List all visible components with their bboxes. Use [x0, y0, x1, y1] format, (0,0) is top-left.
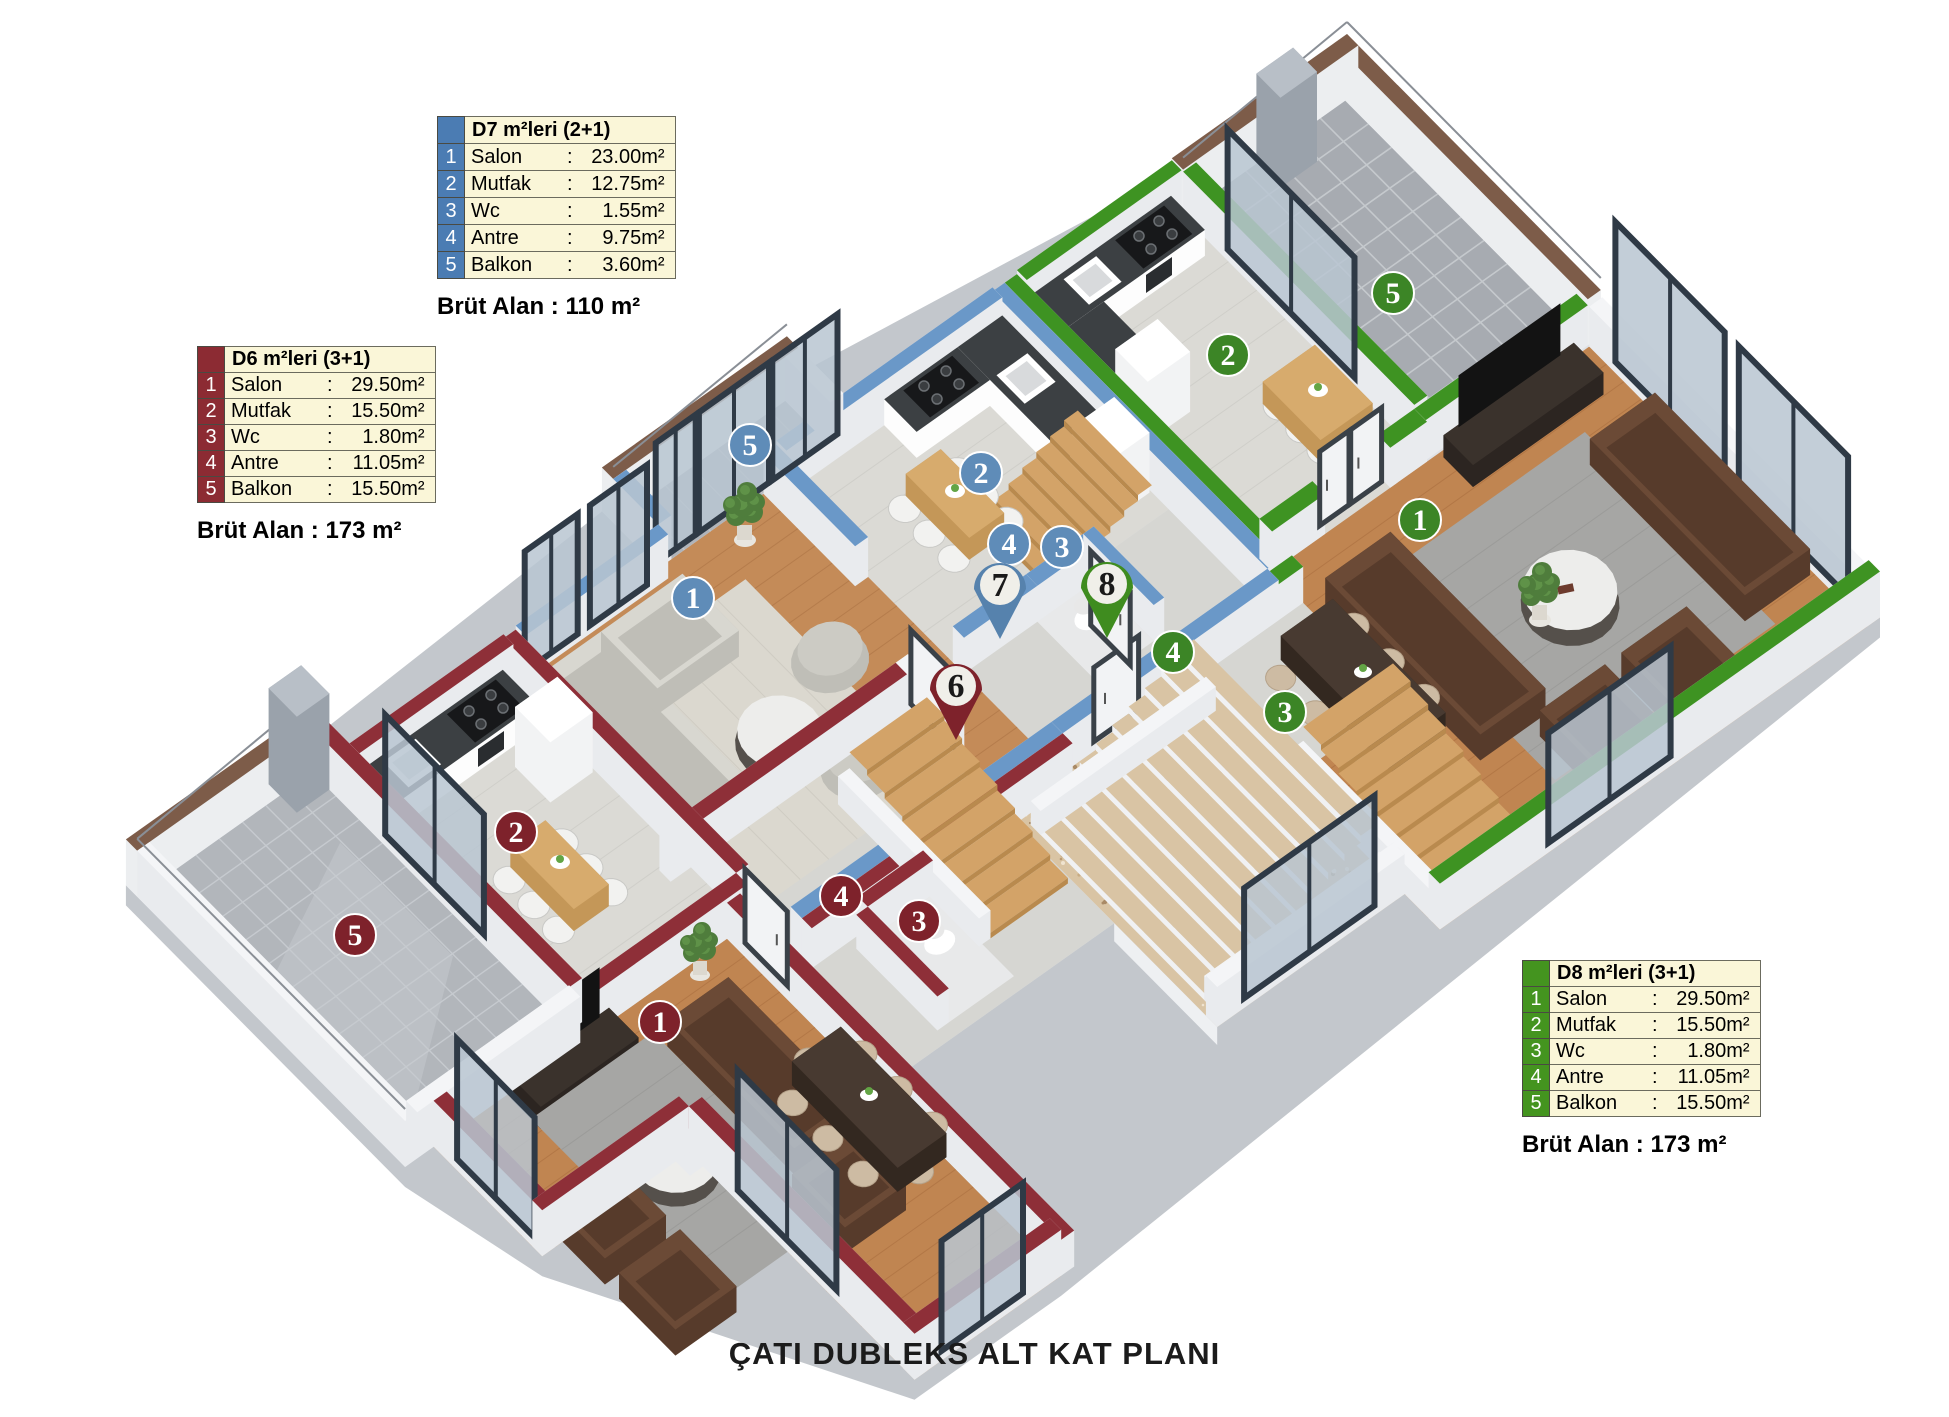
svg-text:5: 5	[1386, 277, 1401, 310]
svg-text:1: 1	[1413, 504, 1428, 537]
svg-text:4: 4	[1166, 636, 1181, 669]
svg-text:5: 5	[348, 919, 363, 952]
svg-text:3: 3	[912, 905, 927, 938]
svg-text:8: 8	[1099, 566, 1116, 603]
svg-text:1: 1	[686, 582, 701, 615]
svg-text:3: 3	[1055, 531, 1070, 564]
svg-text:3: 3	[1278, 696, 1293, 729]
svg-text:7: 7	[992, 567, 1009, 604]
svg-text:5: 5	[743, 429, 758, 462]
svg-text:1: 1	[653, 1006, 668, 1039]
svg-text:4: 4	[1002, 528, 1017, 561]
svg-text:2: 2	[509, 816, 524, 849]
svg-text:2: 2	[1221, 339, 1236, 372]
svg-text:4: 4	[834, 880, 849, 913]
svg-text:6: 6	[948, 668, 965, 705]
svg-text:2: 2	[974, 457, 989, 490]
